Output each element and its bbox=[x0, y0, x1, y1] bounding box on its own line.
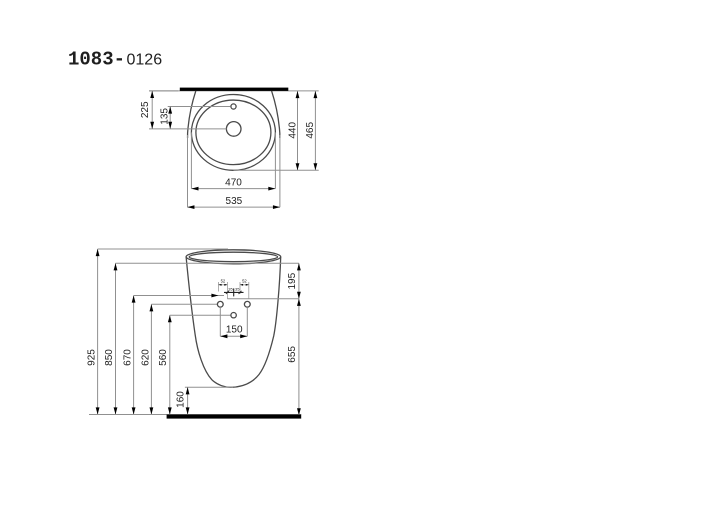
svg-text:655: 655 bbox=[287, 346, 298, 363]
svg-text:440: 440 bbox=[287, 122, 298, 139]
svg-text:560: 560 bbox=[158, 349, 169, 366]
svg-text:0126: 0126 bbox=[127, 52, 163, 69]
svg-text:470: 470 bbox=[225, 178, 242, 189]
svg-text:135: 135 bbox=[160, 108, 171, 125]
svg-text:670: 670 bbox=[122, 349, 133, 366]
svg-text:52: 52 bbox=[242, 279, 247, 284]
svg-text:160: 160 bbox=[175, 391, 186, 408]
svg-text:620: 620 bbox=[140, 349, 151, 366]
svg-text:850: 850 bbox=[104, 349, 115, 366]
svg-text:465: 465 bbox=[305, 122, 316, 139]
svg-text:195: 195 bbox=[287, 272, 298, 289]
svg-text:35: 35 bbox=[228, 286, 233, 291]
svg-text:225: 225 bbox=[140, 101, 151, 118]
svg-text:535: 535 bbox=[226, 196, 243, 207]
svg-text:35: 35 bbox=[235, 286, 240, 291]
svg-text:925: 925 bbox=[87, 349, 98, 366]
svg-text:150: 150 bbox=[226, 324, 243, 335]
svg-text:52: 52 bbox=[221, 279, 226, 284]
svg-text:1083-: 1083- bbox=[68, 49, 125, 71]
